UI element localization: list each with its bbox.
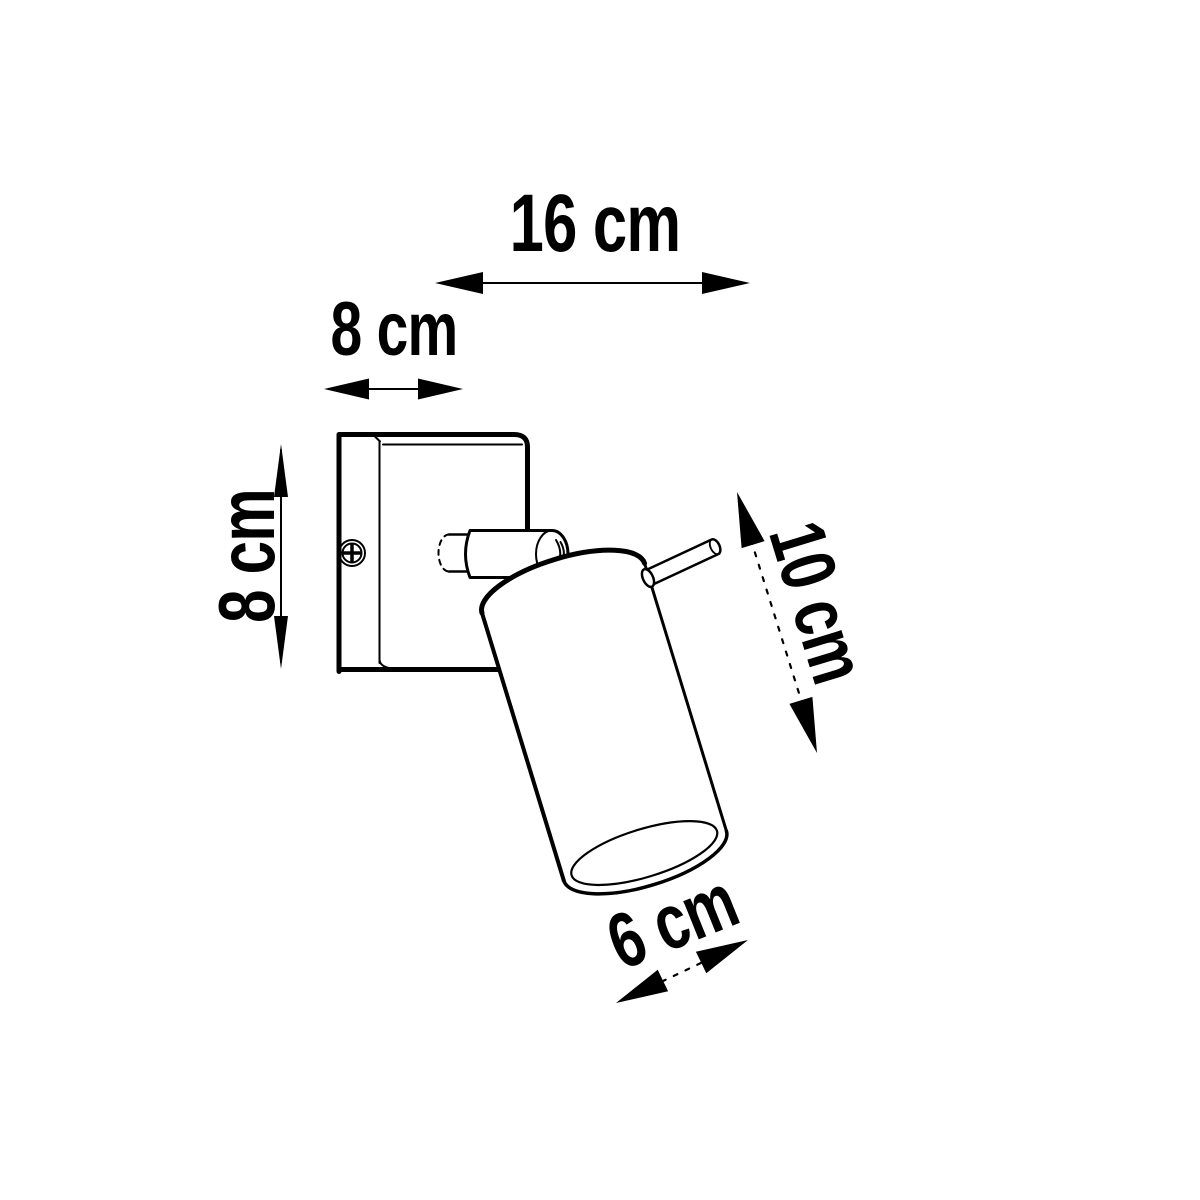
pivot-arm-inner-cylinder-fill (439, 535, 469, 572)
arrowhead-right-icon (702, 272, 750, 294)
dimension-label-plate-width: 8 cm (331, 292, 458, 368)
adjustment-handle (639, 536, 723, 589)
arrowhead-right-icon (418, 379, 463, 400)
dimension-arrow-total-width (435, 272, 750, 294)
arrowhead-down-icon (789, 697, 817, 753)
mounting-screw (339, 540, 365, 566)
arrowhead-down-icon (274, 616, 288, 669)
diagram-canvas: 16 cm 8 cm 8 cm 10 cm 6 cm (0, 0, 1200, 1200)
dimension-arrow-plate-width (324, 379, 463, 400)
shade-body-fill (473, 535, 735, 910)
dimension-label-plate-height: 8 cm (207, 489, 287, 623)
spotlight-shade (473, 535, 735, 910)
handle-rod-body (645, 538, 723, 586)
dimension-label-total-width: 16 cm (510, 183, 681, 265)
arrowhead-left-icon (324, 379, 369, 400)
